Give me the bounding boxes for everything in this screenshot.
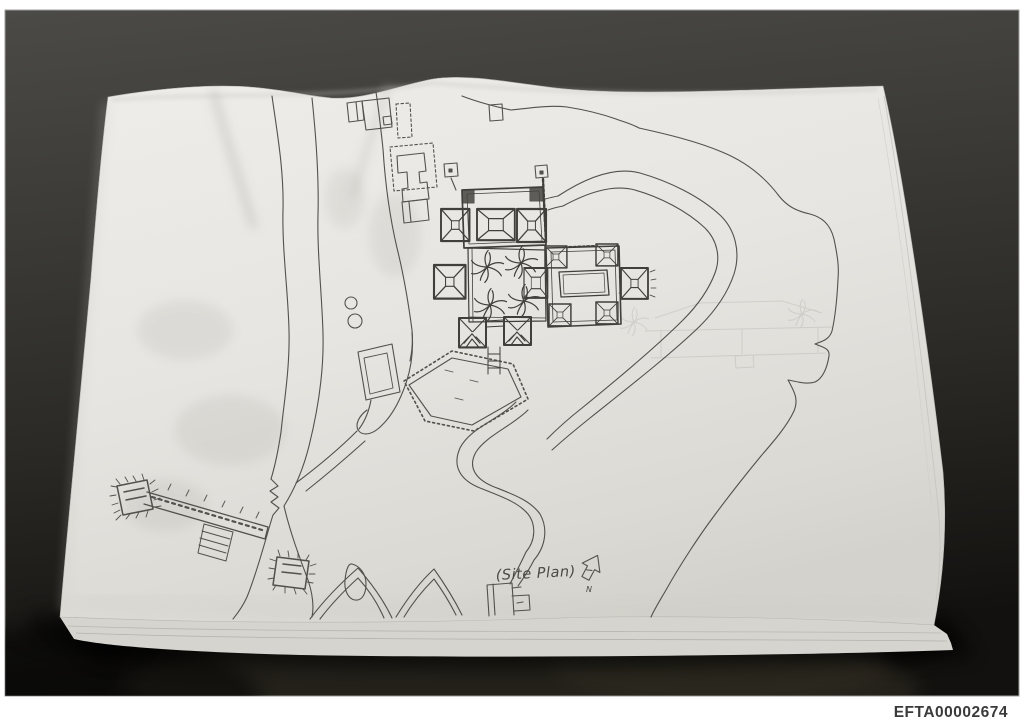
north-label: N bbox=[586, 585, 592, 594]
scanned-photo-page: (Site Plan) N EFTA00002674 bbox=[0, 0, 1024, 725]
paper-stack-edges bbox=[60, 616, 953, 656]
photo-of-site-plan-sketch: (Site Plan) N EFTA00002674 bbox=[0, 0, 1024, 725]
document-id-label: EFTA00002674 bbox=[894, 704, 1008, 721]
